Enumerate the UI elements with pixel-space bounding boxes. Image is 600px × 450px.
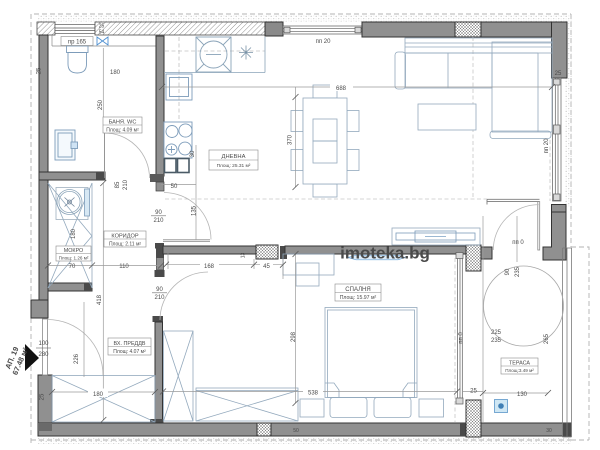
svg-text:пп 20: пп 20 — [316, 39, 332, 45]
svg-text:Площ: 4.09 м²: Площ: 4.09 м² — [106, 128, 139, 134]
svg-text:225: 225 — [491, 330, 502, 336]
svg-text:25: 25 — [470, 389, 477, 395]
svg-text:30: 30 — [190, 150, 196, 157]
svg-text:280: 280 — [38, 352, 49, 358]
svg-text:пр 165: пр 165 — [68, 40, 87, 46]
svg-text:210: 210 — [123, 179, 129, 190]
svg-text:Площ:3.49 м²: Площ:3.49 м² — [505, 368, 534, 373]
svg-text:45: 45 — [263, 264, 270, 270]
svg-text:МОКРО: МОКРО — [64, 248, 84, 254]
svg-text:ДНЕВНА: ДНЕВНА — [222, 154, 246, 160]
svg-text:КОРИДОР: КОРИДОР — [111, 234, 138, 240]
svg-text:25: 25 — [37, 67, 43, 74]
svg-text:210: 210 — [154, 295, 165, 301]
svg-text:Площ: 2.11 м²: Площ: 2.11 м² — [109, 242, 141, 248]
svg-text:50: 50 — [293, 428, 299, 434]
svg-text:180: 180 — [110, 70, 121, 76]
svg-text:370: 370 — [288, 134, 294, 145]
svg-text:235: 235 — [515, 266, 521, 277]
svg-text:265: 265 — [544, 333, 550, 344]
svg-text:пп 0: пп 0 — [459, 332, 465, 344]
svg-text:54: 54 — [99, 30, 105, 36]
svg-text:25: 25 — [555, 71, 562, 77]
svg-text:538: 538 — [308, 391, 319, 397]
svg-text:130: 130 — [517, 392, 528, 398]
svg-text:90: 90 — [156, 287, 163, 293]
svg-text:Площ: 1.26 м²: Площ: 1.26 м² — [59, 256, 89, 261]
svg-text:50: 50 — [171, 184, 178, 190]
svg-text:100: 100 — [38, 341, 49, 347]
svg-text:226: 226 — [74, 353, 80, 364]
svg-text:250: 250 — [98, 99, 104, 110]
svg-text:Площ: 25.31 м²: Площ: 25.31 м² — [217, 163, 251, 169]
svg-text:13: 13 — [241, 253, 247, 259]
svg-text:imoteka.bg: imoteka.bg — [340, 244, 430, 263]
svg-text:30: 30 — [546, 428, 552, 434]
svg-text:пп 0: пп 0 — [512, 240, 524, 246]
svg-text:90: 90 — [505, 268, 511, 275]
svg-text:688: 688 — [336, 86, 347, 92]
svg-text:пп 20: пп 20 — [544, 138, 550, 154]
svg-text:210: 210 — [153, 218, 164, 224]
svg-text:Площ: 4.07 м²: Площ: 4.07 м² — [113, 349, 146, 355]
svg-text:298: 298 — [291, 331, 297, 342]
svg-text:БАНЯ. WC: БАНЯ. WC — [109, 120, 137, 126]
svg-text:180: 180 — [71, 228, 77, 239]
svg-text:168: 168 — [204, 264, 215, 270]
svg-text:СПАЛНЯ: СПАЛНЯ — [345, 287, 370, 293]
svg-text:ТЕРАСА: ТЕРАСА — [509, 361, 530, 367]
svg-text:ВХ. ПРЕДДВ: ВХ. ПРЕДДВ — [114, 341, 146, 347]
svg-text:85: 85 — [115, 181, 121, 188]
svg-text:135: 135 — [192, 205, 198, 216]
svg-text:90: 90 — [155, 210, 162, 216]
svg-text:70: 70 — [69, 264, 76, 270]
svg-text:235: 235 — [491, 338, 502, 344]
svg-text:180: 180 — [93, 392, 104, 398]
svg-text:25: 25 — [40, 393, 46, 400]
svg-text:Площ: 15.97 м²: Площ: 15.97 м² — [340, 295, 377, 301]
svg-text:110: 110 — [119, 264, 129, 270]
svg-text:418: 418 — [97, 294, 103, 305]
